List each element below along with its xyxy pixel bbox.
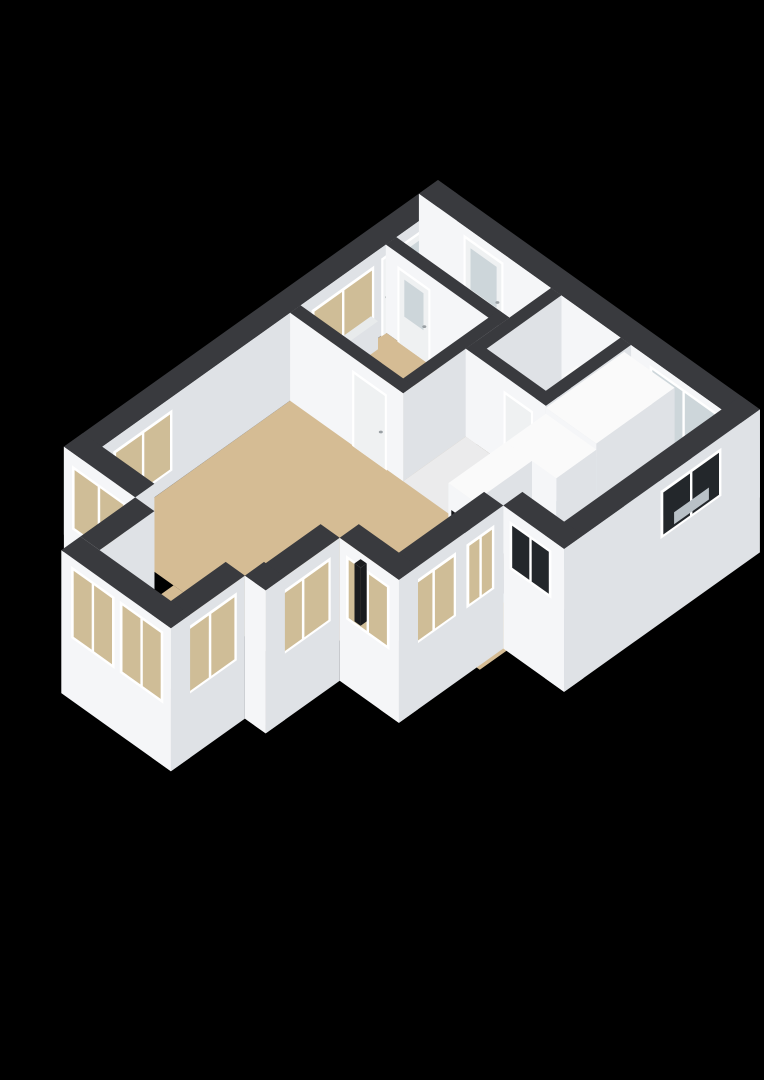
bay-window-2-glass-left [123,606,141,685]
facade-south-kitchen-wall-face-se [564,535,583,692]
bay-window-1-glass-right [94,585,112,664]
bedroom-door-handle [379,431,383,434]
stove-pipe-top [357,561,365,566]
bedroom-south-wall-face-se [403,386,413,482]
floorplan-3d-view [0,0,764,1080]
facade-south-living-wall-face-se [399,566,418,723]
bedroom-hall-door-handle [422,325,426,328]
facade-south-shoulder-wall-face-sw [245,576,266,734]
facade-south-shoulder-wall-face-se [266,577,285,734]
stove-pipe-face-se [361,563,367,625]
floorplan-canvas [0,0,764,1080]
bay-window-2-glass-right [143,620,161,699]
front-door-handle [495,301,499,304]
bay-window-1-glass-left [74,571,92,650]
living-window-east-1-glass-right [469,539,479,604]
living-window-east-1-glass-left [482,530,492,595]
bay-front-wall-face-se [171,615,190,772]
stove-pipe-face-sw [355,563,361,625]
